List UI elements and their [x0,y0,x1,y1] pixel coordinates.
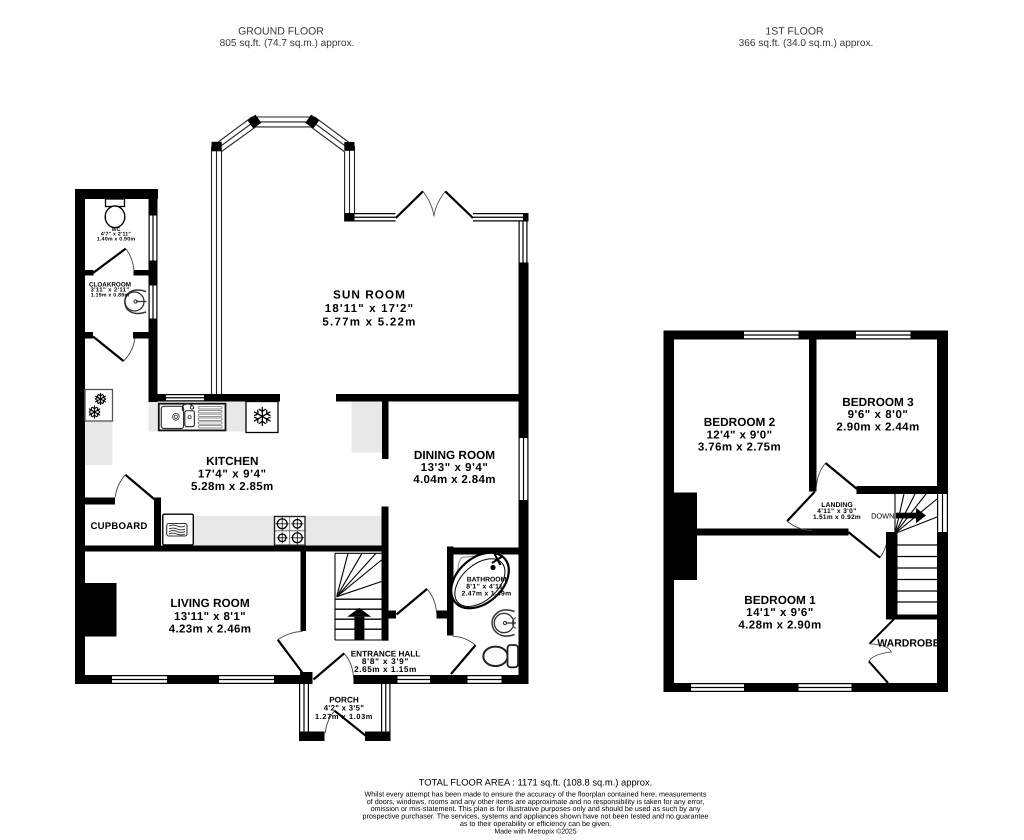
svg-text:DINING ROOM: DINING ROOM [414,448,495,462]
svg-text:TOTAL FLOOR AREA : 1171 sq.ft.: TOTAL FLOOR AREA : 1171 sq.ft. (108.8 sq… [419,776,653,787]
svg-text:13'3" x 9'4": 13'3" x 9'4" [421,462,489,474]
svg-text:12'4" x 9'0": 12'4" x 9'0" [707,429,773,441]
svg-text:2.47m x 1.49m: 2.47m x 1.49m [461,590,511,597]
svg-text:14'1" x 9'6": 14'1" x 9'6" [746,607,814,619]
svg-text:GROUND FLOOR: GROUND FLOOR [238,26,324,38]
svg-text:1.40m x 0.90m: 1.40m x 0.90m [97,236,136,242]
svg-text:5.77m x 5.22m: 5.77m x 5.22m [322,317,416,329]
svg-text:5.28m x 2.85m: 5.28m x 2.85m [191,481,274,493]
svg-text:2.65m x 1.15m: 2.65m x 1.15m [354,665,417,674]
svg-text:3.76m x 2.75m: 3.76m x 2.75m [698,442,781,454]
svg-text:WARDROBE: WARDROBE [877,637,939,649]
svg-text:9'6" x 8'0": 9'6" x 8'0" [848,409,909,421]
svg-text:BEDROOM 1: BEDROOM 1 [744,593,816,607]
svg-text:17'4" x 9'4": 17'4" x 9'4" [198,469,267,481]
svg-text:SUN ROOM: SUN ROOM [333,288,406,302]
svg-text:2.90m x 2.44m: 2.90m x 2.44m [836,421,919,433]
svg-text:KITCHEN: KITCHEN [206,454,258,468]
svg-text:1.27m x 1.03m: 1.27m x 1.03m [315,712,373,721]
svg-text:DOWN: DOWN [871,511,894,520]
svg-text:4.23m x 2.46m: 4.23m x 2.46m [169,624,252,636]
svg-text:1ST FLOOR: 1ST FLOOR [765,26,824,38]
svg-text:CUPBOARD: CUPBOARD [90,521,147,532]
svg-text:as to their operability or eff: as to their operability or efficiency ca… [460,819,611,828]
svg-text:1.19m x 0.89m: 1.19m x 0.89m [91,293,130,299]
svg-text:4.04m x 2.84m: 4.04m x 2.84m [413,474,496,486]
svg-text:366 sq.ft. (34.0 sq.m.) approx: 366 sq.ft. (34.0 sq.m.) approx. [739,38,874,49]
svg-text:BEDROOM 2: BEDROOM 2 [704,415,776,429]
svg-text:LIVING ROOM: LIVING ROOM [170,596,249,610]
svg-text:4.28m x 2.90m: 4.28m x 2.90m [738,619,821,631]
svg-text:8'1" x 4'11": 8'1" x 4'11" [466,583,507,590]
svg-text:BEDROOM 3: BEDROOM 3 [842,395,914,409]
svg-text:1.51m x 0.92m: 1.51m x 0.92m [813,514,861,521]
svg-text:13'11" x 8'1": 13'11" x 8'1" [174,611,246,623]
svg-text:18'11" x 17'2": 18'11" x 17'2" [325,303,414,315]
svg-text:805 sq.ft. (74.7 sq.m.) approx: 805 sq.ft. (74.7 sq.m.) approx. [220,38,355,49]
svg-text:Made with Metropix ©2025: Made with Metropix ©2025 [494,829,576,836]
